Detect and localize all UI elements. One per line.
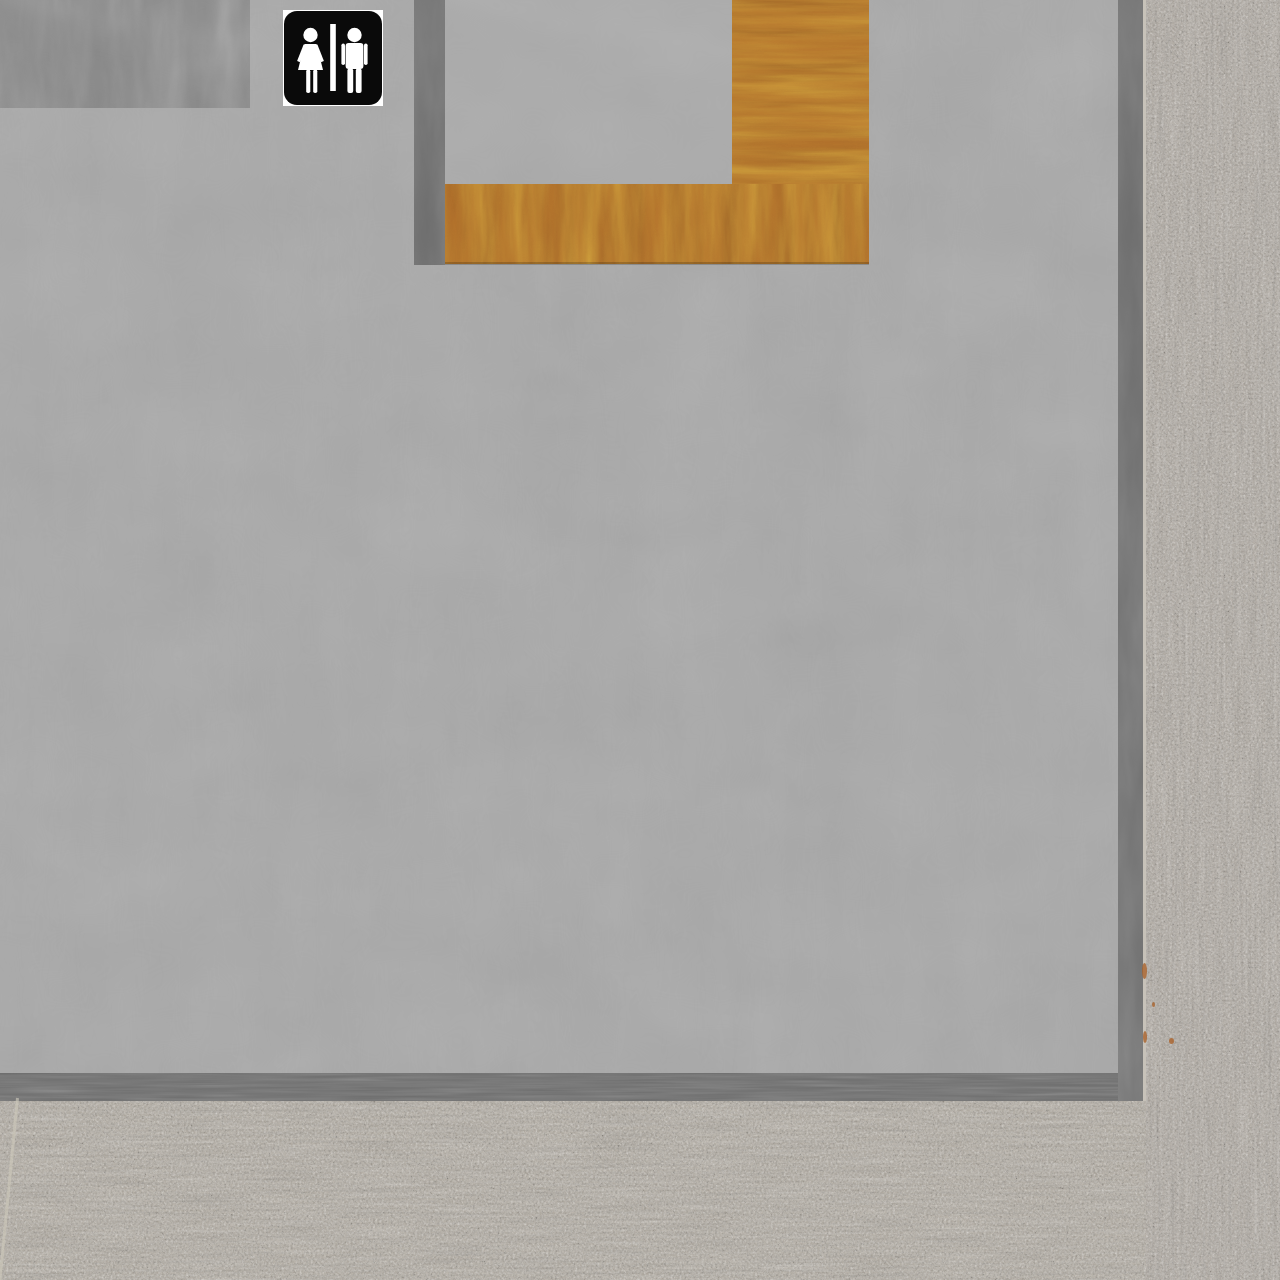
door-trim-left xyxy=(414,0,445,265)
wood-grain-texture xyxy=(732,0,869,184)
wood-flame-shade-texture xyxy=(445,184,869,264)
pillar-speckle-texture xyxy=(1146,0,1280,1280)
wood-flame-texture xyxy=(445,184,869,264)
granite-floor xyxy=(0,1101,1146,1280)
wood-shade-texture xyxy=(732,0,869,184)
inset-panel-texture xyxy=(445,0,732,184)
right-trim-grain-texture xyxy=(1118,0,1146,1101)
trim-grain-texture xyxy=(414,0,445,265)
restroom-sign xyxy=(283,10,383,106)
rust-fleck xyxy=(1152,1002,1155,1007)
panel-grain-texture xyxy=(0,0,250,108)
door-inset-panel xyxy=(445,0,732,184)
wall-edge-right-trim xyxy=(1118,0,1146,1101)
rust-fleck xyxy=(1142,963,1147,979)
wood-frame-column xyxy=(732,0,869,184)
wood-frame-shadow xyxy=(445,262,869,265)
wall-base-trim xyxy=(0,1073,1118,1101)
base-trim-grain-texture xyxy=(0,1073,1118,1101)
game-viewport[interactable] xyxy=(0,0,1280,1280)
granite-pillar xyxy=(1146,0,1280,1280)
rust-fleck xyxy=(1169,1038,1174,1044)
divider-bar xyxy=(330,24,336,91)
wall-panel-dark xyxy=(0,0,250,108)
wood-frame-bar xyxy=(445,184,869,264)
rust-fleck xyxy=(1143,1031,1147,1043)
floor-speckle-texture xyxy=(0,1101,1146,1280)
